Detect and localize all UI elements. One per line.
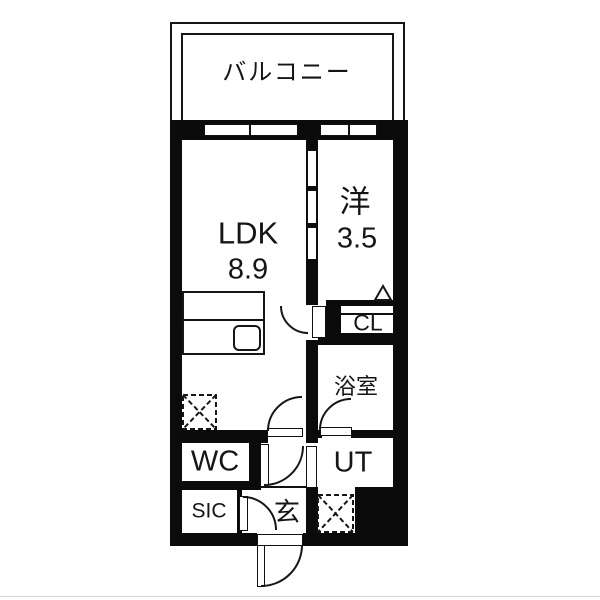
western-room-label: 洋 [340,187,371,218]
sic-label: SIC [191,501,226,522]
refrigerator-mark [183,395,216,429]
kitchen-sink [233,325,261,351]
wall-bottom-left [170,533,257,546]
wall-wc-bottom [170,481,261,490]
sic-door-leaf [239,496,248,531]
western-room-size-label: 3.5 [337,225,377,254]
washer-mark [318,495,353,532]
ldk-label: LDK [218,218,278,249]
sliding-door-panel-3 [307,227,317,260]
ldk-window [204,124,298,136]
sliding-door-panel-2 [307,190,317,224]
wall-western-bottom [336,300,395,306]
floor-plan: バルコニー LDK 8.9 洋 3.5 CL 浴室 WC UT SIC 玄 [0,0,600,600]
ldk-door-arc [268,397,302,431]
wall-entrance-right [306,487,318,533]
sliding-door-panel-1 [307,150,317,187]
bathroom-label: 浴室 [334,376,378,398]
wall-bath-bottom-b [351,430,393,438]
wc-door-arc [264,446,303,485]
utility-door-leaf [306,446,317,488]
ldk-door-leaf [267,428,303,437]
bathroom-door-arc [320,399,351,430]
bathroom-door-leaf [320,427,352,436]
kitchen-counter-divider [182,319,265,321]
closet-door-leaf [312,306,326,338]
entrance-label: 玄 [274,499,300,525]
balcony-label: バルコニー [222,61,352,85]
wc-label: WC [191,448,239,477]
western-room-window-mullion [348,124,350,136]
ldk-window-mullion [249,124,251,136]
closet-door-arc [281,306,308,333]
closet-label: CL [353,312,382,335]
entrance-door-leaf [257,545,265,587]
closet-folding-door-mark [375,286,391,300]
wall-utility-block [355,487,408,546]
wc-door-leaf [260,444,269,487]
page-edge-line [0,596,600,597]
wall-right [393,120,408,546]
ldk-size-label: 8.9 [228,256,268,285]
wall-ldk-bottom [182,430,268,443]
wall-partition-lower [306,340,318,443]
entrance-door-arc [261,545,302,586]
utility-label: UT [334,449,373,478]
